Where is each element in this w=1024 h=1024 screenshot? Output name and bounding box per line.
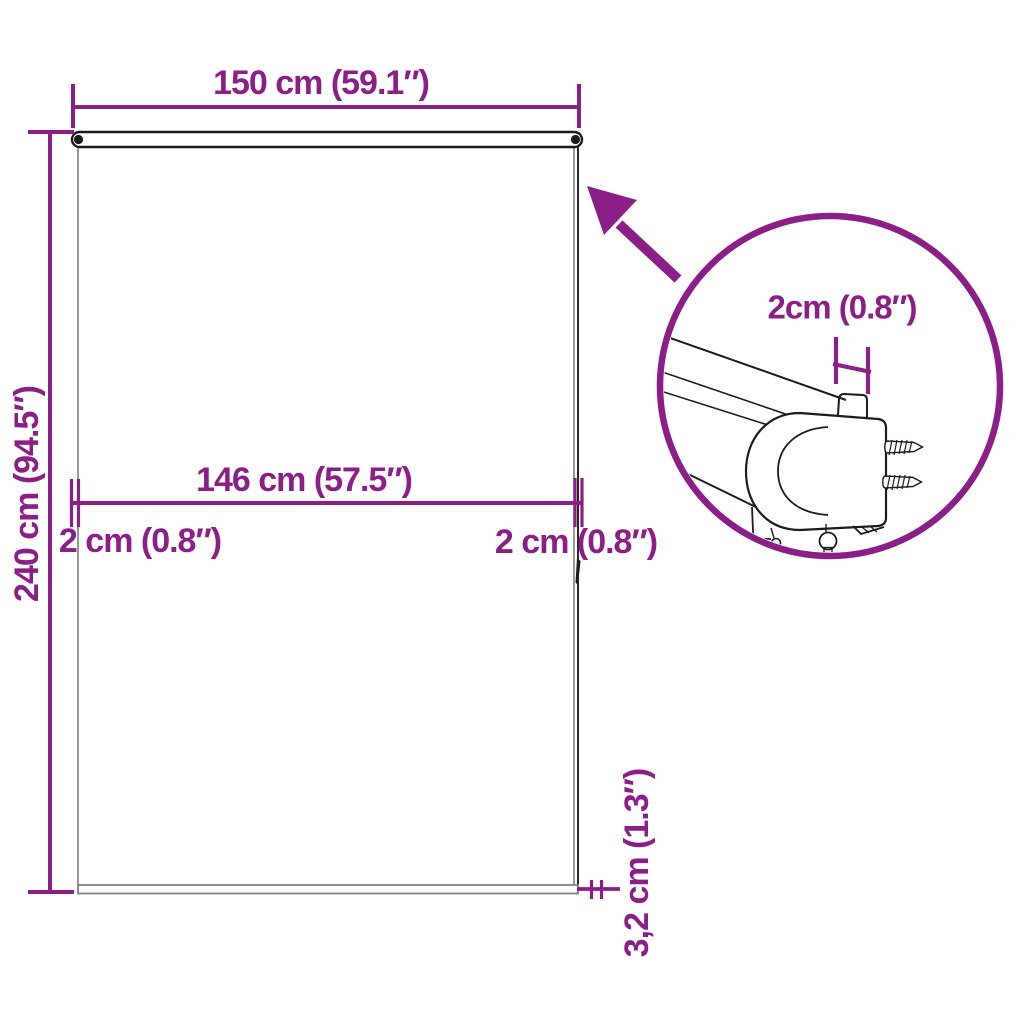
blind-top-roller-bar bbox=[72, 132, 582, 147]
roller-blind-drawing bbox=[72, 132, 582, 894]
bottom-bar-label: 3,2 cm (1.3″) bbox=[620, 769, 654, 958]
detail-end-cap bbox=[746, 413, 886, 530]
cord-hook bbox=[576, 558, 581, 585]
dim-bottom-bar bbox=[577, 880, 620, 899]
blind-bottom-bar bbox=[78, 885, 578, 894]
total-height-label: 240 cm (94.5″) bbox=[10, 386, 44, 602]
callout-arrow-icon bbox=[587, 186, 678, 279]
inner-width-label: 146 cm (57.5″) bbox=[196, 463, 412, 497]
diagram-linework bbox=[0, 0, 1024, 1024]
gap-right-label: 2 cm (0.8″) bbox=[495, 525, 657, 559]
roller-bar-left-cap bbox=[74, 135, 83, 144]
gap-left-label: 2 cm (0.8″) bbox=[59, 524, 221, 558]
total-width-label: 150 cm (59.1″) bbox=[213, 66, 429, 100]
roller-bar-right-cap bbox=[571, 135, 580, 144]
dimension-diagram: 150 cm (59.1″) 240 cm (94.5″) 146 cm (57… bbox=[0, 0, 1024, 1024]
detail-width-label: 2cm (0.8″) bbox=[768, 291, 917, 324]
callout-arrow-shaft bbox=[619, 224, 678, 279]
